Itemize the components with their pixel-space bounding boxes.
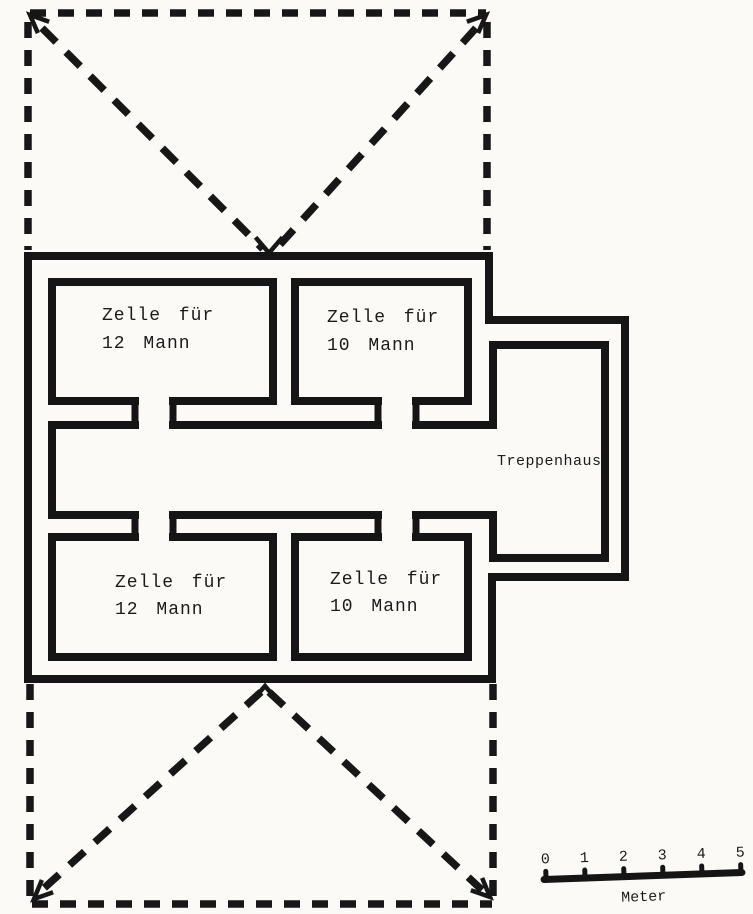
scale-unit-label: Meter [621,888,667,907]
corridor-west-wall [52,425,135,515]
cell-bottom-right-label-line1: Zelle für [330,570,442,590]
cell-bottom-left-wall [52,537,273,657]
cell-bottom-right-label-line2: 10 Mann [330,597,419,617]
cell-top-right-label-line2: 10 Mann [327,336,416,356]
scanned-floor-plan-page: Zelle für 12 Mann Zelle für 10 Mann Zell… [0,0,753,914]
scale-tick-label-3: 3 [658,847,668,864]
scale-tick-label-5: 5 [735,844,745,861]
dashed-diagonal-top-left [42,28,263,249]
dashed-wing-top [28,13,487,253]
cell-top-right-label-line1: Zelle für [327,308,439,328]
dashed-diagonal-bottom-right [269,692,482,890]
scale-tick-label-2: 2 [619,849,629,866]
cell-top-left-label-line1: Zelle für [102,306,214,326]
room-labels: Zelle für 12 Mann Zelle für 10 Mann Zell… [102,306,602,620]
floor-plan-drawing: Zelle für 12 Mann Zelle für 10 Mann Zell… [0,0,753,914]
scale-bar: 0 1 2 3 4 5 Meter [541,844,747,909]
scale-tick-label-0: 0 [541,851,551,868]
dashed-diagonal-bottom-left [42,692,261,890]
scale-tick-label-1: 1 [580,850,590,867]
scale-tick-label-4: 4 [696,846,706,863]
cell-bottom-left-label-line2: 12 Mann [115,600,204,620]
stairwell-inner-wall [416,345,605,558]
arrowhead-bottom-center-up [253,686,277,700]
dashed-wing-bottom [30,684,493,904]
scale-bar-line [544,873,742,880]
cell-top-left-label-line2: 12 Mann [102,334,191,354]
cell-bottom-left-label-line1: Zelle für [115,573,227,593]
stairwell-label: Treppenhaus [497,453,602,470]
dashed-diagonal-top-right [276,28,476,249]
